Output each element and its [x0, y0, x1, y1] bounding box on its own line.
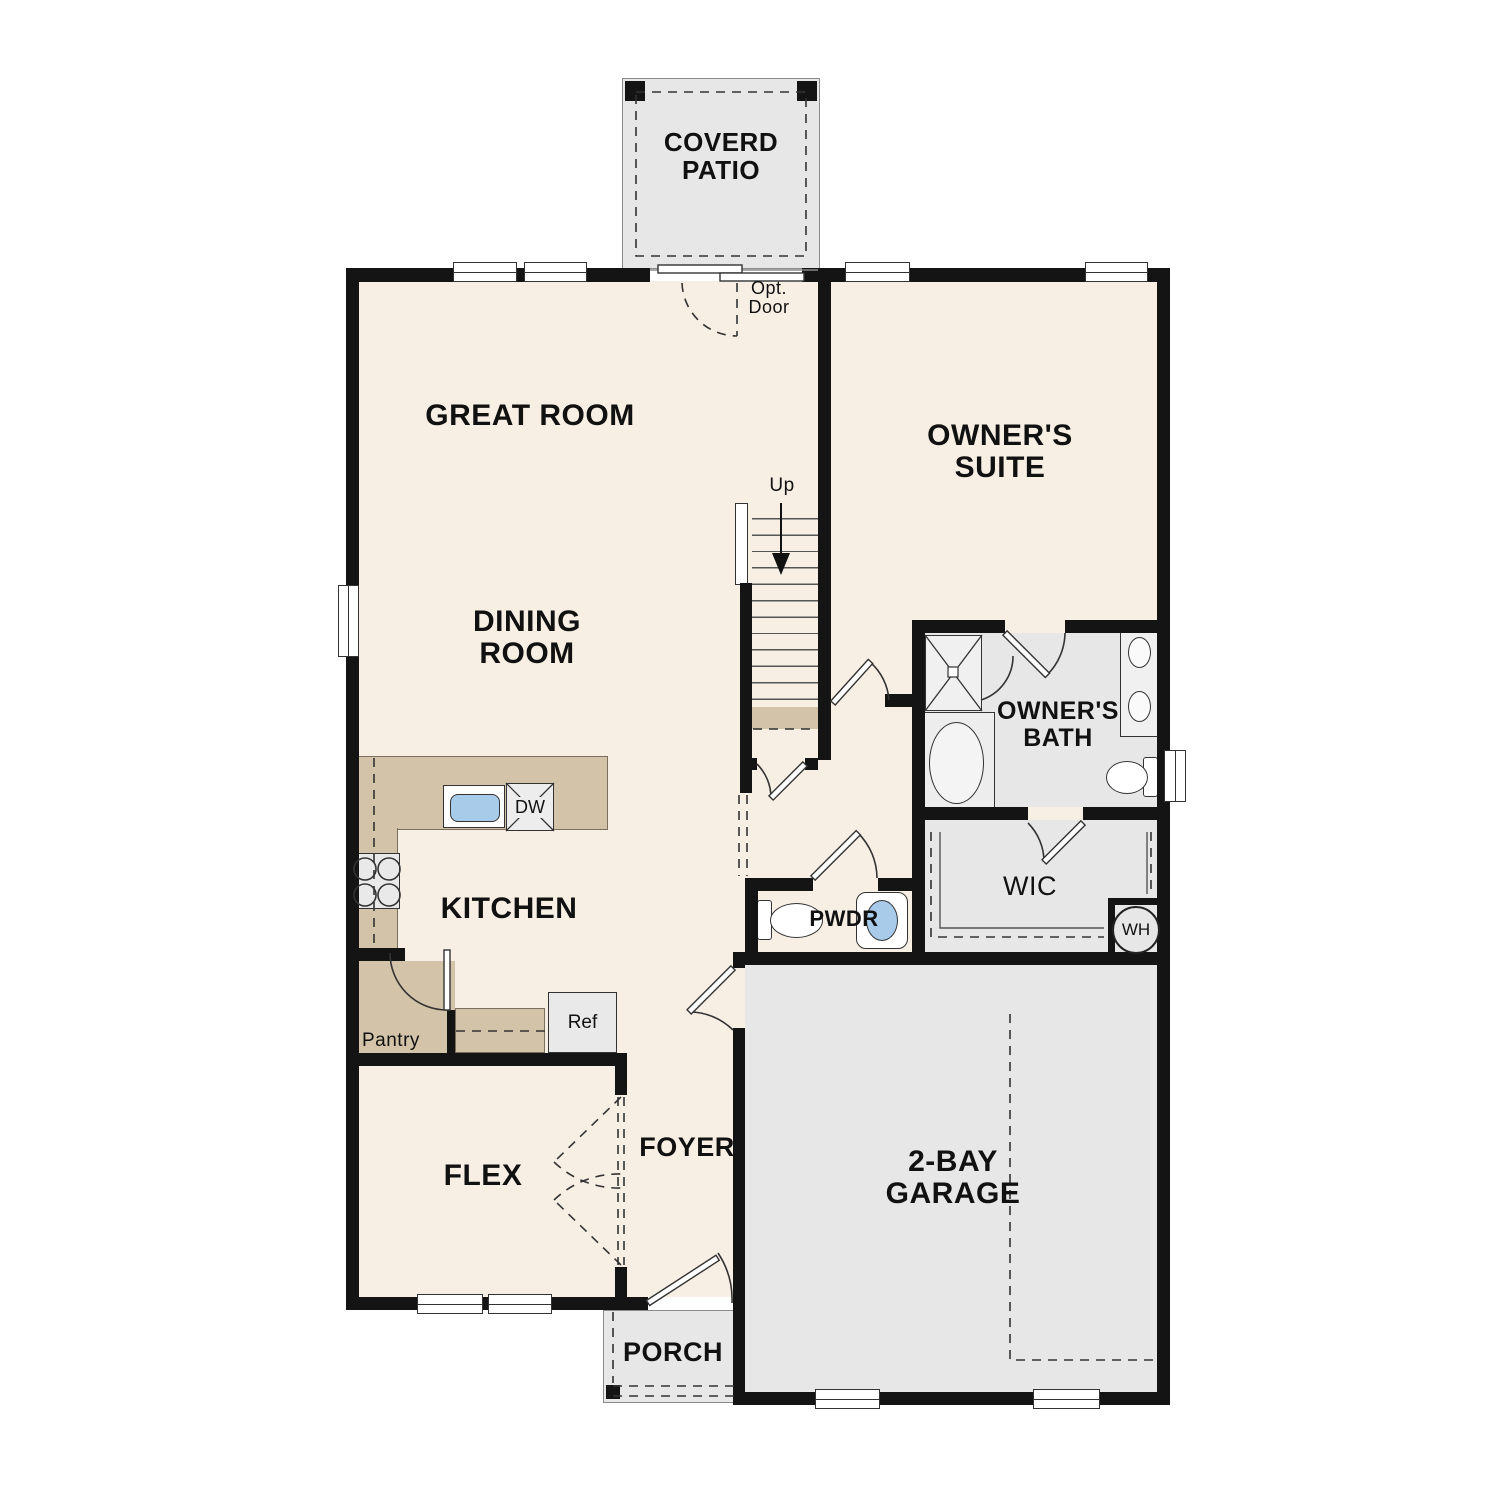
window: [417, 1294, 483, 1314]
wall: [615, 1053, 627, 1095]
wall: [1065, 620, 1157, 633]
staircase: [752, 503, 818, 703]
wall: [733, 952, 1170, 965]
label-line: 2-BAY: [803, 1146, 1103, 1178]
label-line: COVERD: [622, 128, 820, 156]
wall: [447, 1010, 455, 1053]
wall: [733, 1392, 1170, 1405]
wall: [1083, 807, 1157, 820]
wall: [878, 878, 912, 891]
dishwasher: DW: [506, 783, 554, 831]
window: [1164, 750, 1186, 802]
room-label-dining-room: DINING ROOM: [377, 606, 677, 671]
floor-plan: DW Ref WH: [0, 0, 1500, 1500]
porch-post: [606, 1385, 620, 1399]
window: [453, 262, 517, 282]
wall: [745, 758, 757, 770]
stair-railing: [735, 503, 748, 585]
room-label-wic: WIC: [950, 872, 1110, 901]
label-line: SUITE: [850, 452, 1150, 484]
vanity-sink-1: [1128, 637, 1151, 668]
room-label-pwdr: PWDR: [794, 907, 894, 931]
patio-post-left: [625, 81, 645, 101]
room-label-kitchen: KITCHEN: [399, 893, 619, 925]
room-label-porch: PORCH: [613, 1338, 733, 1367]
refrigerator: Ref: [548, 992, 617, 1053]
window: [524, 262, 587, 282]
label-line: ROOM: [377, 638, 677, 670]
pantry-counter: [455, 1008, 545, 1053]
wall: [805, 758, 818, 770]
label-line: Door: [740, 298, 798, 317]
water-heater-label: WH: [1122, 920, 1150, 940]
wall: [912, 620, 1005, 633]
window: [845, 262, 910, 282]
room-label-owners-bath: OWNER'S BATH: [958, 698, 1158, 752]
label-line: Opt.: [740, 279, 798, 298]
wall: [912, 807, 1028, 820]
wall: [1157, 268, 1170, 965]
room-label-flex: FLEX: [383, 1160, 583, 1192]
room-label-garage: 2-BAY GARAGE: [803, 1146, 1103, 1211]
dishwasher-label: DW: [513, 797, 547, 818]
room-label-covered-patio: COVERD PATIO: [622, 128, 820, 184]
label-opt-door: Opt. Door: [740, 279, 798, 318]
label-line: OWNER'S: [850, 420, 1150, 452]
window: [1085, 262, 1148, 282]
window: [338, 585, 359, 657]
wall: [733, 1028, 745, 1392]
wall: [885, 694, 912, 707]
label-line: GARAGE: [803, 1178, 1103, 1210]
kitchen-sink: [450, 794, 500, 822]
label-line: OWNER'S: [958, 698, 1158, 725]
patio-post-right: [797, 81, 817, 101]
label-line: DINING: [377, 606, 677, 638]
label-pantry: Pantry: [362, 1031, 442, 1052]
room-label-foyer: FOYER: [607, 1133, 767, 1162]
wall: [912, 620, 925, 965]
wall: [733, 952, 745, 968]
window: [815, 1389, 880, 1409]
stair-closet-shelf: [752, 707, 818, 729]
room-label-owners-suite: OWNER'S SUITE: [850, 420, 1150, 485]
label-line: PATIO: [622, 156, 820, 184]
label-up: Up: [762, 476, 802, 497]
wall: [346, 948, 405, 961]
window: [488, 1294, 552, 1314]
bath-toilet-bowl: [1106, 761, 1148, 794]
stove: [352, 853, 400, 909]
refrigerator-label: Ref: [568, 1012, 598, 1034]
wall: [1108, 898, 1157, 905]
room-label-great-room: GREAT ROOM: [330, 400, 730, 432]
wall: [1157, 952, 1170, 1405]
label-line: BATH: [958, 725, 1158, 752]
wall: [745, 878, 813, 891]
wall: [818, 268, 831, 760]
window: [1033, 1389, 1100, 1409]
water-heater: WH: [1112, 906, 1160, 954]
wall: [346, 1053, 627, 1066]
